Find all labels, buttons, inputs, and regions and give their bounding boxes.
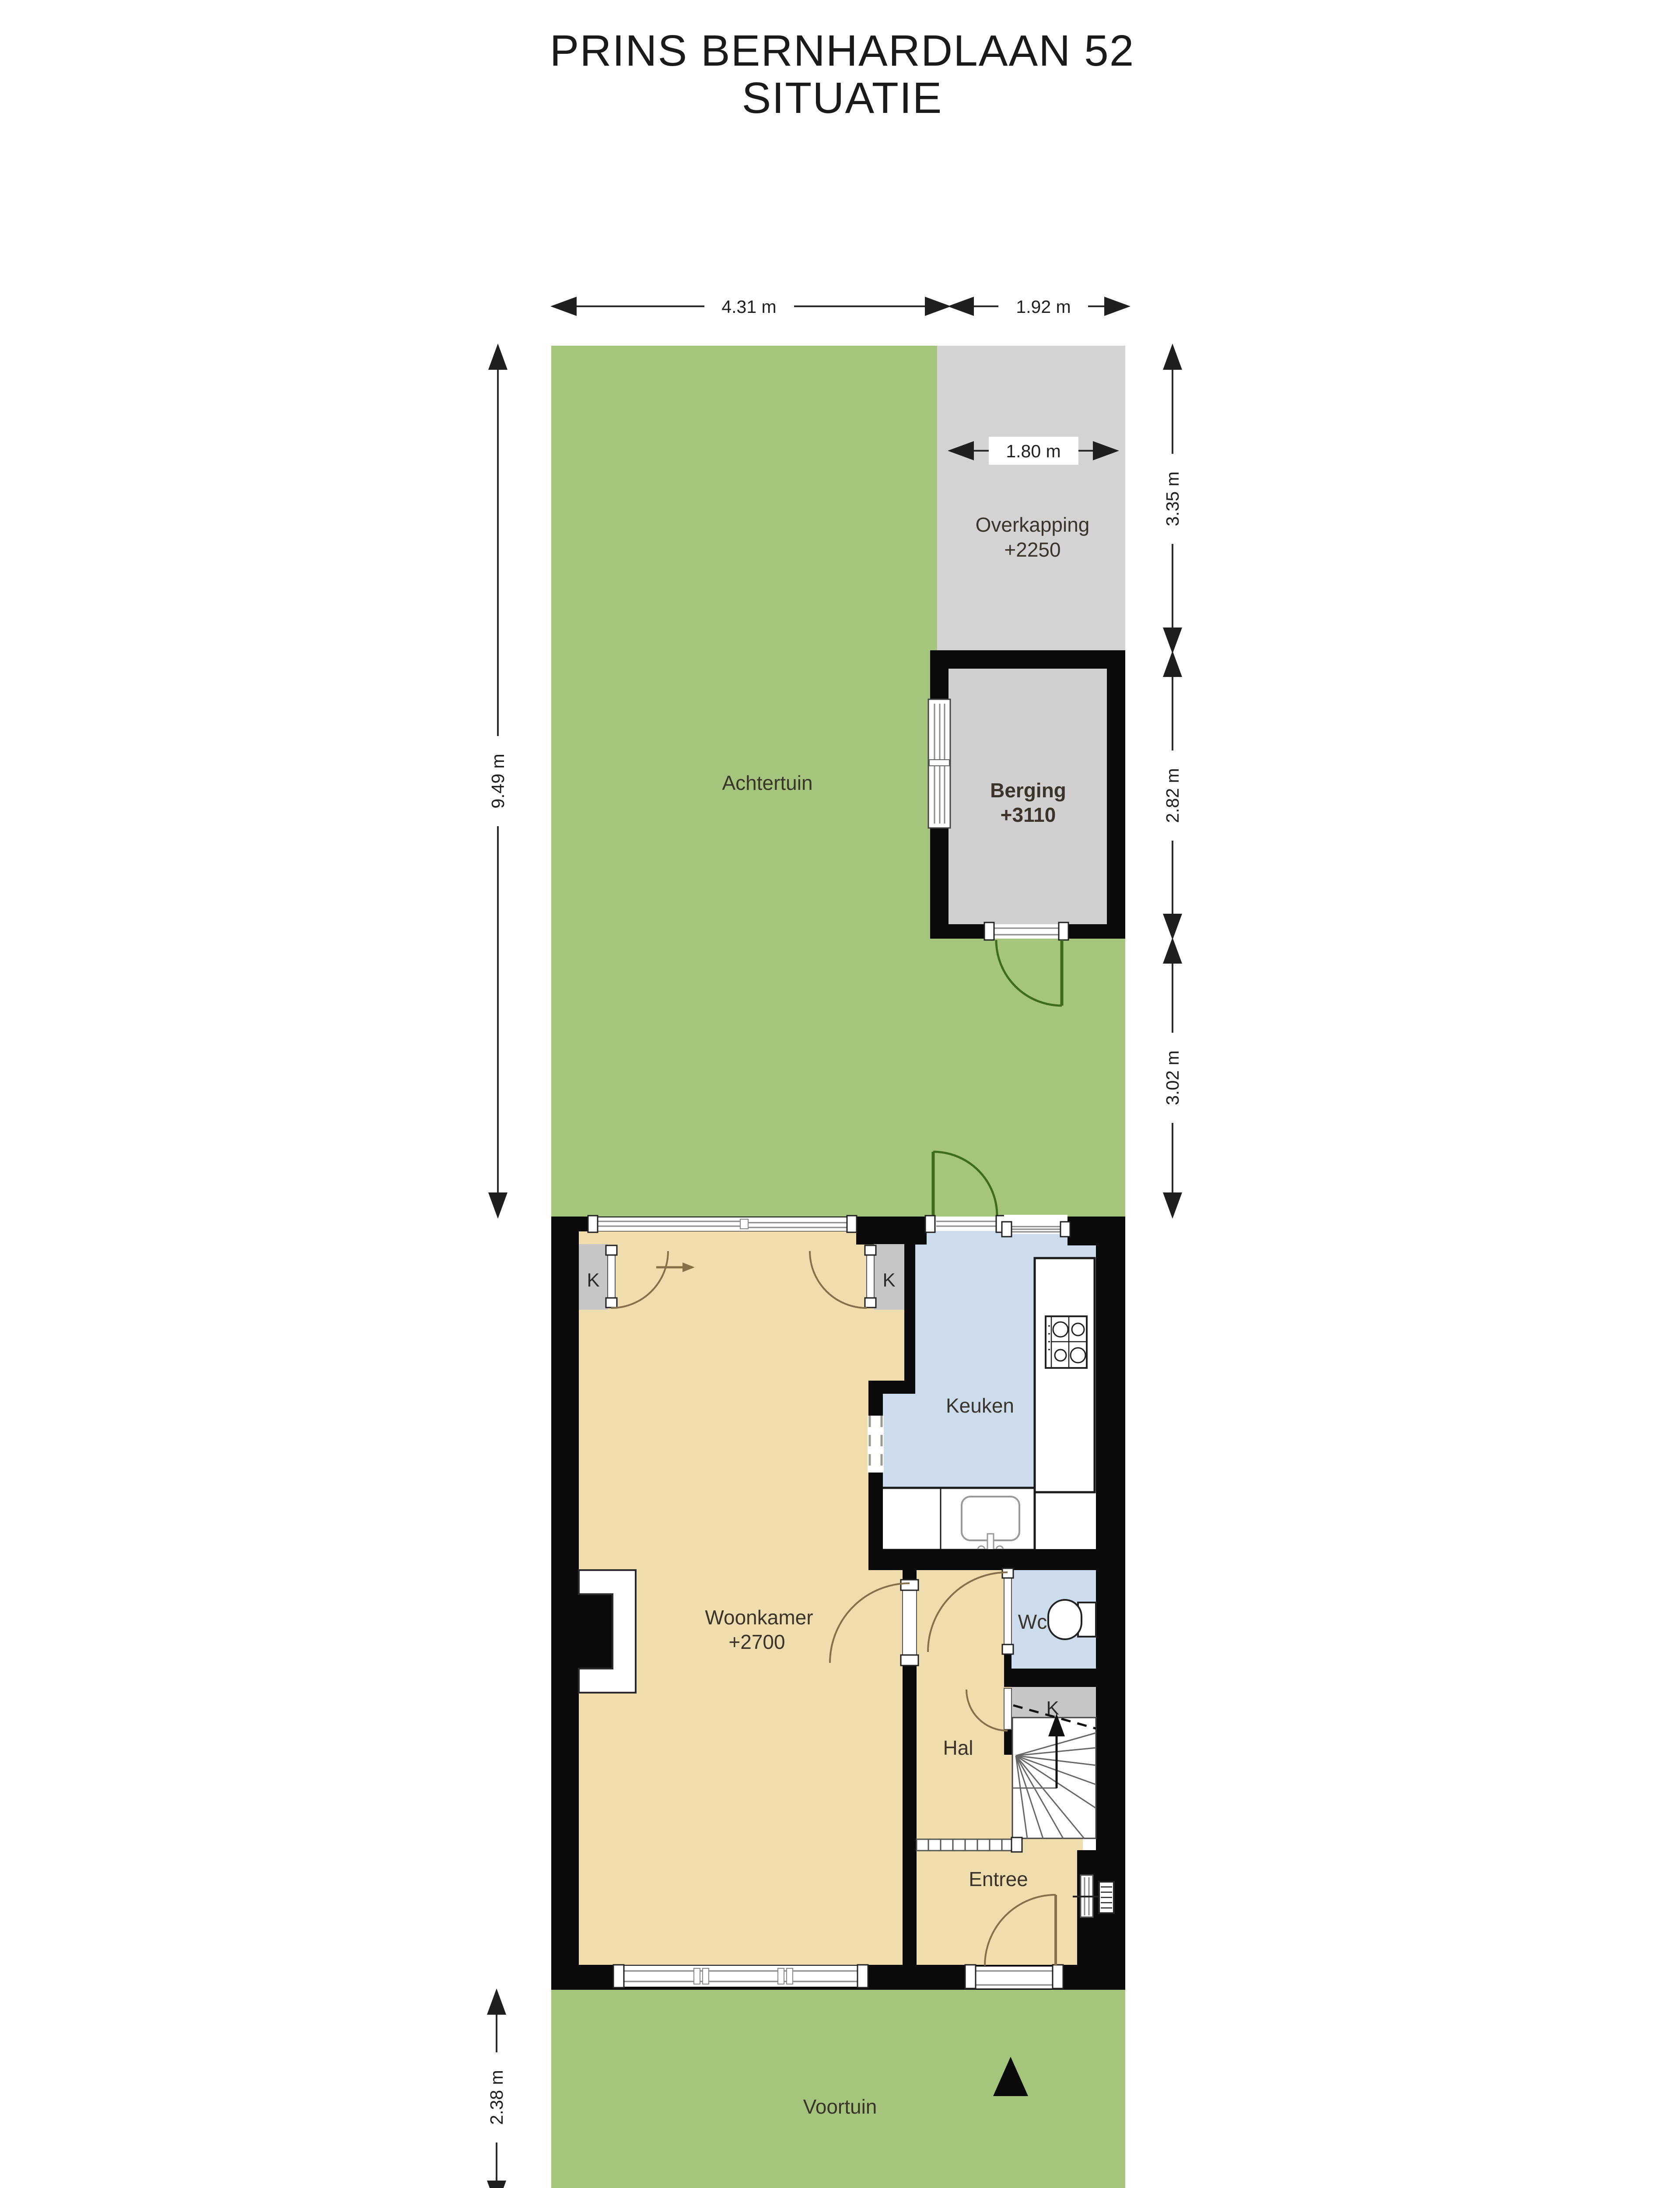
dim-top-left: 4.31 m [721,297,776,317]
entree-floor [917,1838,1083,1967]
woonkamer-top-window [588,1217,856,1231]
page-title-line2: SITUATIE [742,74,943,123]
house: K K Wc K [551,1215,1125,1990]
closet-left-label: K [587,1269,599,1291]
berging-level: +3110 [1001,803,1056,826]
floorplan-svg: PRINS BERNHARDLAAN 52 SITUATIE Achtertui… [0,0,1680,2188]
overkapping-level: +2250 [1004,538,1060,561]
dim-top-right: 1.92 m [1016,297,1071,317]
keuken-floor-ext [883,1394,918,1493]
floorplan-page: PRINS BERNHARDLAAN 52 SITUATIE Achtertui… [0,0,1680,2188]
kitchen-counter [1035,1258,1095,1492]
stove-icon [1046,1316,1087,1368]
dim-garden-height: 9.49 m [488,754,508,808]
overkapping-area [937,346,1125,652]
overkapping-structure: Overkapping +2250 [937,346,1125,652]
woonkamer-level: +2700 [728,1630,785,1653]
voortuin-label: Voortuin [803,2095,877,2118]
garden-door-threshold [934,1217,997,1231]
closet-right-label: K [882,1269,895,1291]
berging-door-opening [993,924,1060,939]
dim-overkapping-height: 3.35 m [1162,471,1183,526]
wc-label: Wc [1018,1610,1047,1633]
hal-label: Hal [943,1736,973,1759]
achtertuin-label: Achtertuin [722,771,812,794]
dim-voortuin-height: 2.38 m [486,2070,507,2125]
dim-overkapping-width: 1.80 m [1006,441,1060,461]
voortuin-garden: Voortuin [551,1990,1125,2188]
woonkamer-label: Woonkamer [705,1606,813,1629]
keuken-label: Keuken [946,1394,1014,1417]
entree-label: Entree [969,1868,1028,1890]
berging-label: Berging [990,779,1066,802]
dim-gap-height: 3.02 m [1162,1050,1183,1105]
stairs [1012,1705,1096,1838]
overkapping-label: Overkapping [976,513,1090,536]
voortuin-area [551,1990,1125,2188]
hal-woonkamer-door [903,1582,917,1663]
hal-entree-partition [917,1839,1020,1851]
page-title-line1: PRINS BERNHARDLAAN 52 [550,26,1135,75]
woonkamer-bottom-window [614,1966,868,1987]
dim-berging-height: 2.82 m [1162,768,1183,823]
toilet-icon [1048,1600,1096,1639]
